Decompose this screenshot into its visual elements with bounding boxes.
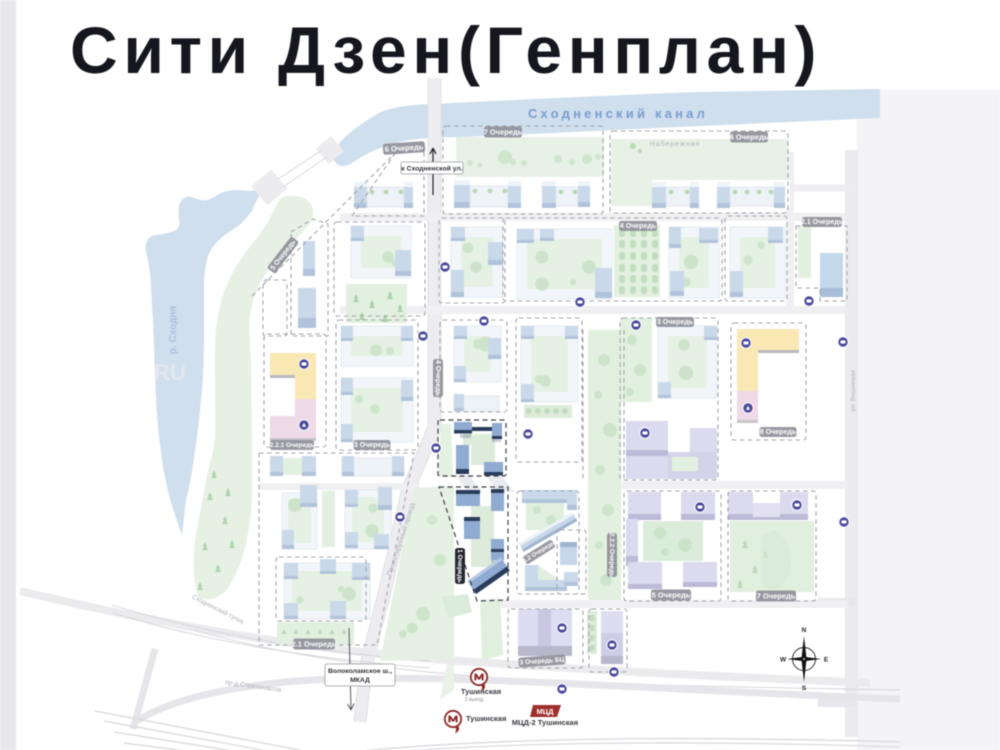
svg-text:Сити Дзен(Генплан): Сити Дзен(Генплан) [70,13,822,87]
svg-text:ул. Вишневая: ул. Вишневая [850,370,857,412]
svg-text:E: E [824,657,829,664]
svg-text:2.1 Очередь: 2.1 Очередь [801,219,844,226]
svg-text:RU: RU [154,360,186,385]
svg-text:N: N [802,627,807,634]
svg-text:7 Очередь: 7 Очередь [484,128,523,137]
svg-text:Волоколамское ш.,: Волоколамское ш., [328,668,392,675]
svg-text:8 Очередь: 8 Очередь [760,429,797,436]
svg-text:Тушинская: Тушинская [466,714,506,723]
svg-text:3 Очередь: 3 Очередь [354,442,391,449]
svg-text:2.2.2 Очередь: 2.2.2 Очередь [608,533,615,577]
svg-text:4 Очередь: 4 Очередь [620,223,657,230]
svg-text:1 Очередь: 1 Очередь [456,549,463,583]
svg-text:р. Сходня: р. Сходня [168,306,179,355]
svg-text:5 Очередь: 5 Очередь [652,591,691,600]
svg-text:2.2.1 Очередь: 2.2.1 Очередь [270,442,314,449]
svg-text:к Сходненской ул.: к Сходненской ул. [401,165,462,173]
svg-text:Сходненский канал: Сходненский канал [528,106,708,121]
svg-text:Набережная: Набережная [650,140,701,148]
svg-text:МЦД-2 Тушинская: МЦД-2 Тушинская [512,718,578,727]
svg-text:7 Очередь: 7 Очередь [757,592,796,601]
svg-text:4 Очередь: 4 Очередь [434,360,441,397]
svg-text:W: W [780,657,787,664]
svg-text:3 Очередь: 3 Очередь [657,319,694,326]
svg-text:2.1 Очередь: 2.1 Очередь [292,640,337,649]
svg-text:3 выход: 3 выход [465,697,484,703]
svg-text:6 Очередь: 6 Очередь [730,133,769,142]
svg-text:МЦД: МЦД [536,707,554,716]
svg-text:МКАД: МКАД [350,677,370,684]
svg-text:S: S [802,685,807,692]
svg-text:Тушинская: Тушинская [461,687,501,696]
